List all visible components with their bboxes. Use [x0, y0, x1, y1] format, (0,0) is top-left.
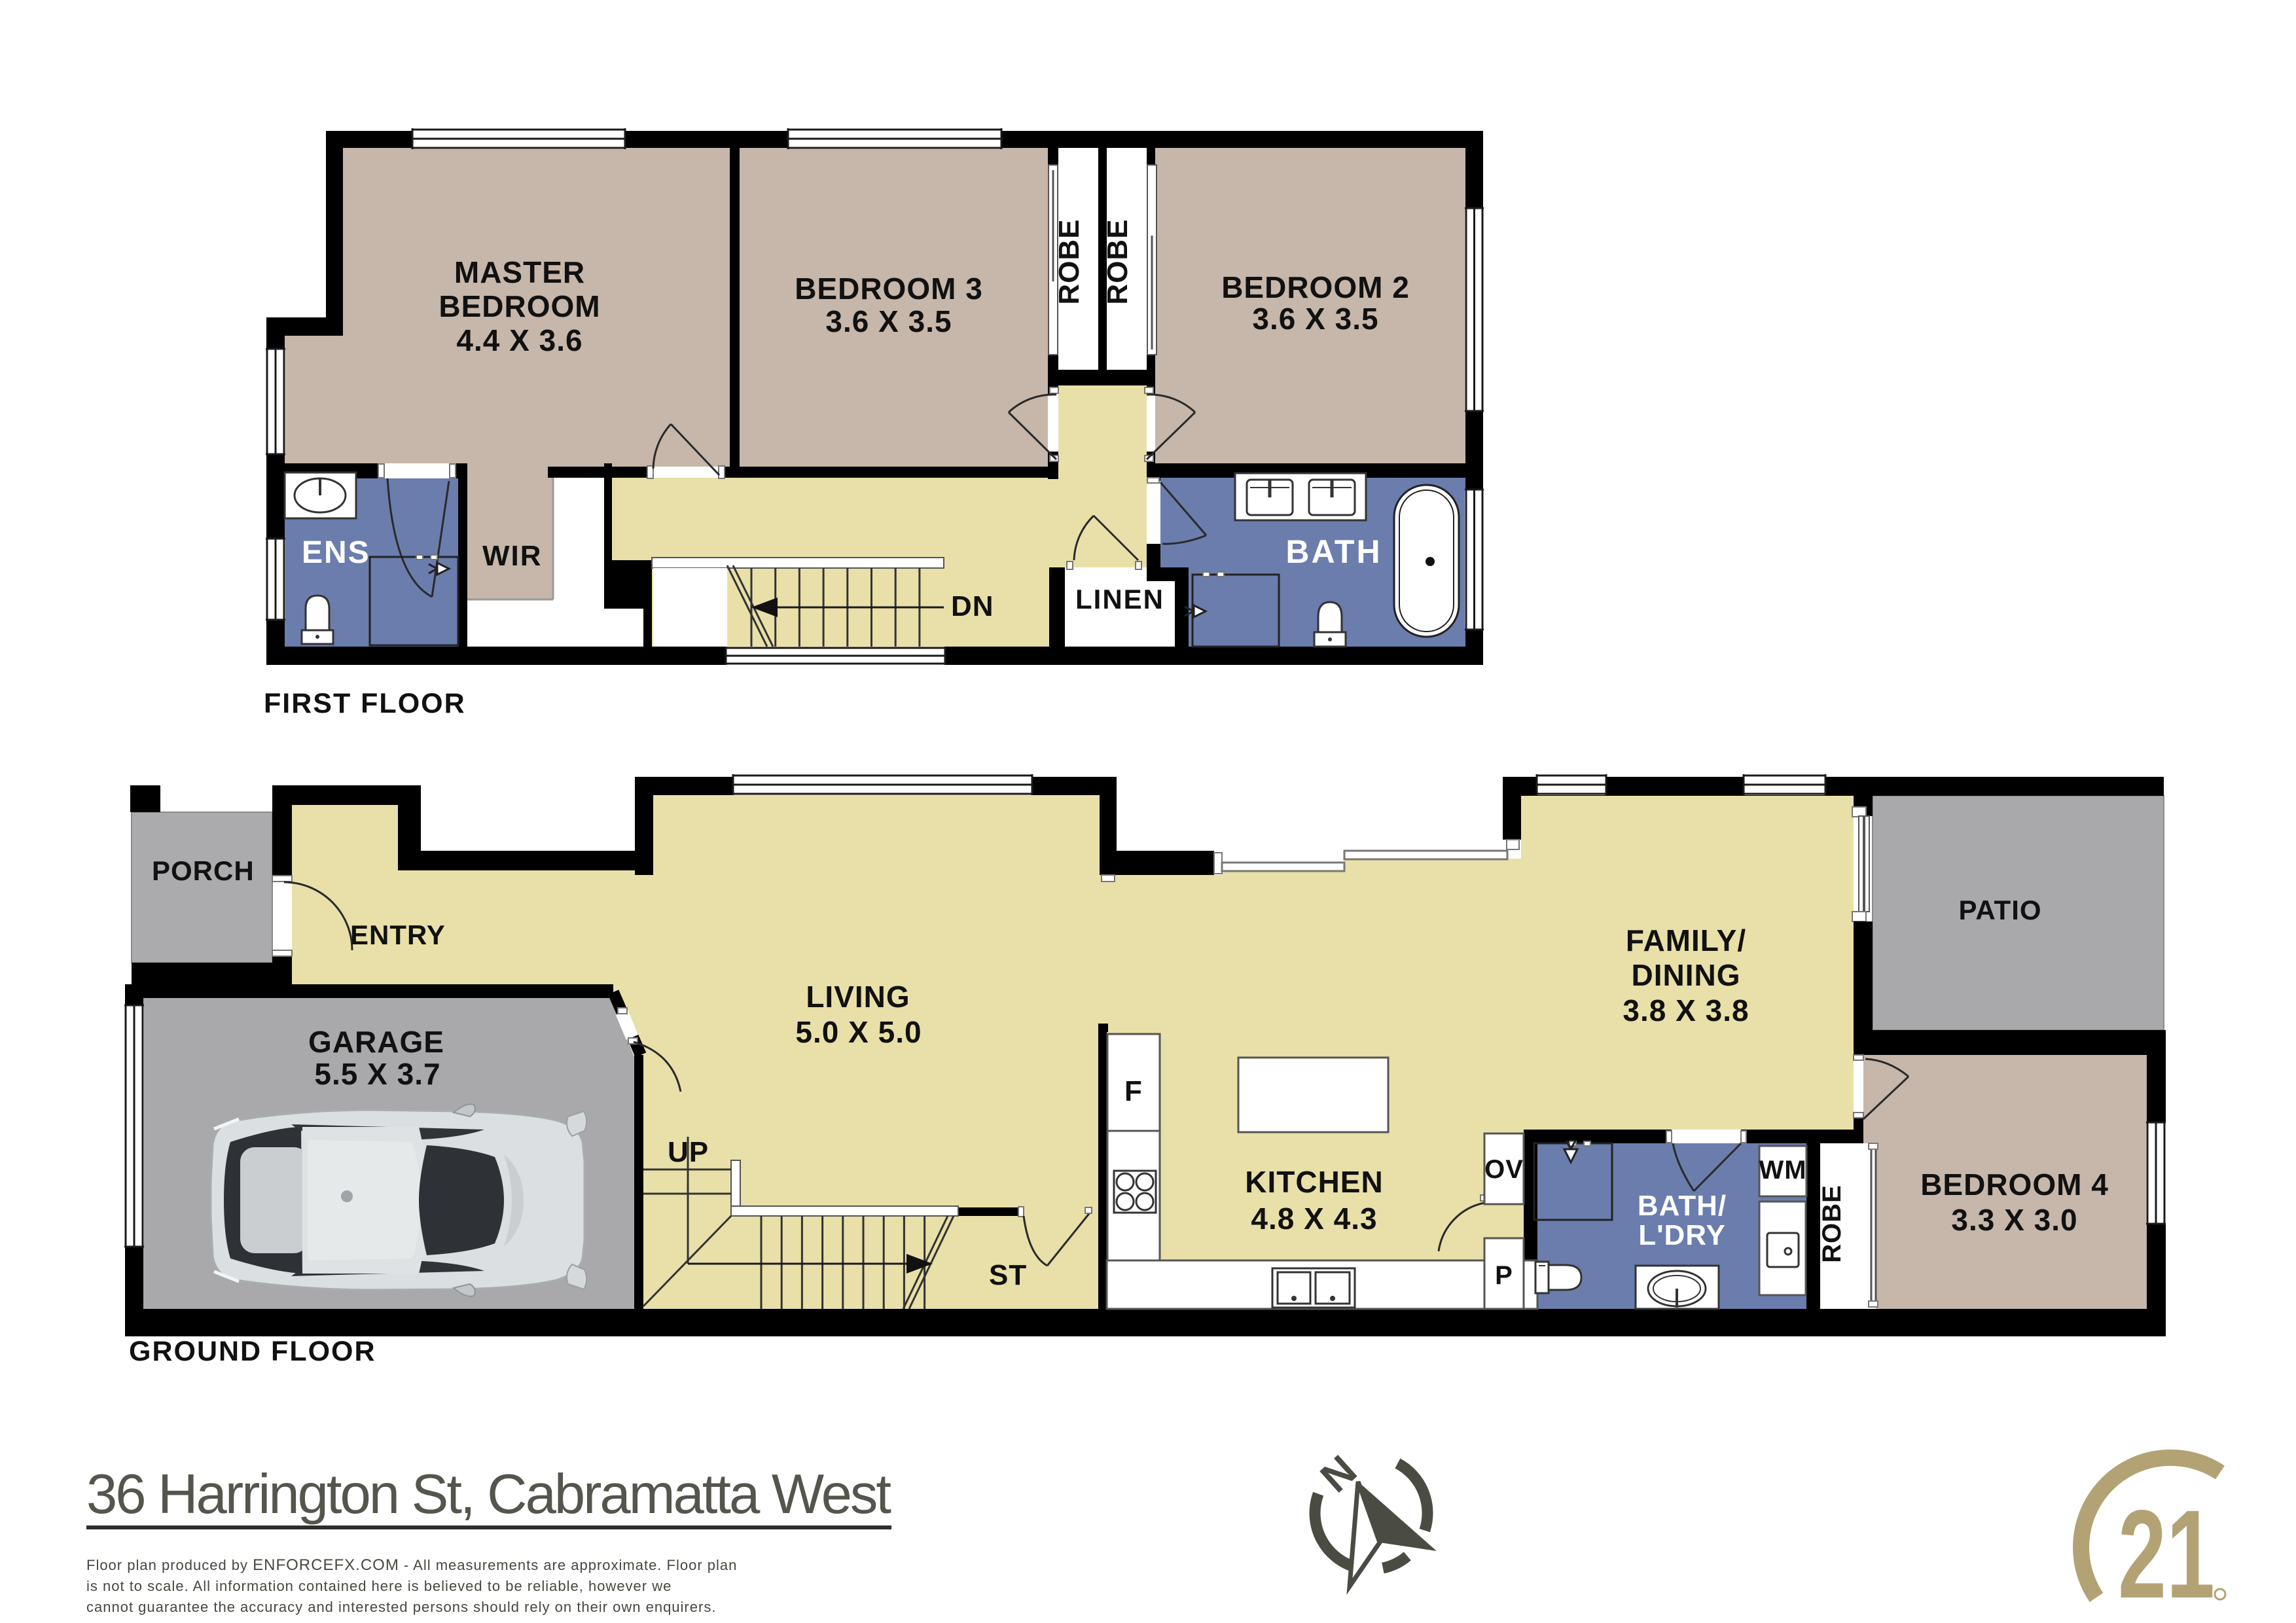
svg-text:5.5 X 3.7: 5.5 X 3.7	[314, 1057, 440, 1091]
svg-text:L'DRY: L'DRY	[1638, 1219, 1726, 1251]
svg-text:4.8 X 4.3: 4.8 X 4.3	[1251, 1202, 1377, 1236]
svg-text:GROUND FLOOR: GROUND FLOOR	[129, 1336, 376, 1367]
svg-text:21: 21	[2118, 1484, 2215, 1623]
svg-text:BATH/: BATH/	[1638, 1190, 1727, 1222]
svg-text:Floor plan produced by ENFORCE: Floor plan produced by ENFORCEFX.COM - A…	[86, 1556, 737, 1574]
svg-text:ENTRY: ENTRY	[350, 919, 446, 950]
svg-text:FIRST FLOOR: FIRST FLOOR	[264, 688, 466, 719]
svg-text:DINING: DINING	[1632, 958, 1741, 992]
svg-text:ST: ST	[989, 1259, 1027, 1291]
svg-text:ROBE: ROBE	[1102, 219, 1134, 304]
svg-text:3.3 X 3.0: 3.3 X 3.0	[1951, 1203, 2077, 1237]
svg-text:WM: WM	[1759, 1156, 1806, 1185]
svg-text:BEDROOM 3: BEDROOM 3	[795, 272, 983, 306]
svg-text:F: F	[1124, 1075, 1143, 1107]
svg-text:DN: DN	[951, 590, 994, 622]
svg-text:3.6 X 3.5: 3.6 X 3.5	[825, 304, 952, 338]
svg-text:36 Harrington St, Cabramatta W: 36 Harrington St, Cabramatta West	[86, 1463, 891, 1525]
svg-text:ENS: ENS	[302, 535, 370, 570]
svg-text:FAMILY/: FAMILY/	[1626, 923, 1746, 957]
svg-text:ROBE: ROBE	[1818, 1185, 1846, 1263]
svg-text:LIVING: LIVING	[806, 980, 910, 1014]
svg-text:3.6 X 3.5: 3.6 X 3.5	[1252, 302, 1378, 336]
svg-text:cannot guarantee the accuracy: cannot guarantee the accuracy and intere…	[86, 1599, 716, 1615]
svg-text:BATH: BATH	[1285, 533, 1382, 570]
svg-text:PATIO: PATIO	[1958, 895, 2041, 925]
svg-text:GARAGE: GARAGE	[308, 1025, 444, 1059]
svg-text:5.0 X 5.0: 5.0 X 5.0	[795, 1015, 922, 1049]
svg-text:LINEN: LINEN	[1075, 584, 1164, 615]
svg-text:BEDROOM: BEDROOM	[439, 289, 600, 323]
svg-text:BEDROOM 2: BEDROOM 2	[1221, 270, 1410, 304]
svg-text:UP: UP	[668, 1136, 709, 1168]
svg-text:KITCHEN: KITCHEN	[1245, 1165, 1383, 1199]
svg-text:4.4 X 3.6: 4.4 X 3.6	[456, 323, 583, 357]
svg-text:P: P	[1495, 1261, 1513, 1290]
svg-text:PORCH: PORCH	[152, 855, 255, 886]
svg-text:ROBE: ROBE	[1053, 219, 1085, 304]
svg-text:BEDROOM 4: BEDROOM 4	[1920, 1168, 2109, 1202]
svg-text:WIR: WIR	[482, 540, 543, 572]
svg-text:is not to scale. All informati: is not to scale. All information contain…	[86, 1578, 672, 1594]
svg-text:MASTER: MASTER	[454, 255, 585, 289]
svg-text:OV: OV	[1484, 1155, 1524, 1184]
svg-text:3.8 X 3.8: 3.8 X 3.8	[1623, 993, 1749, 1027]
